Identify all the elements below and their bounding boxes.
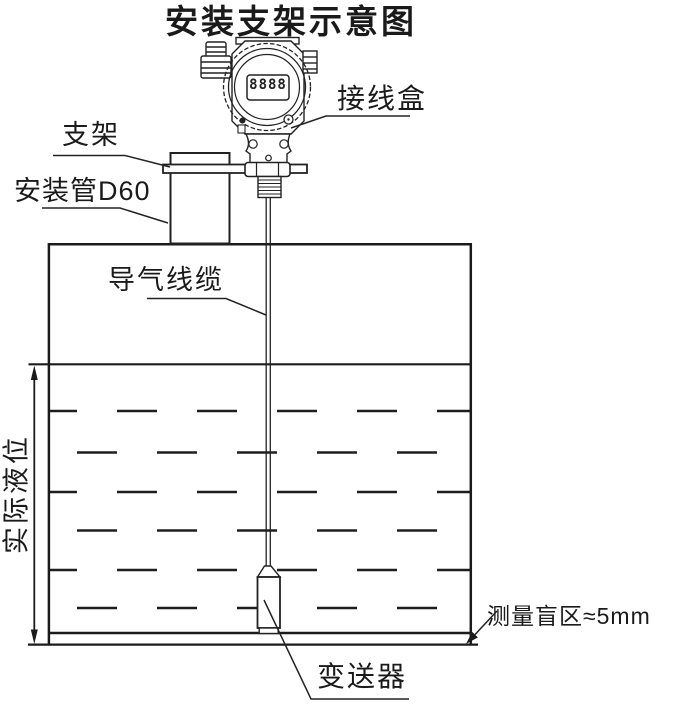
arrowhead-up-icon [31, 366, 38, 381]
tank [28, 243, 478, 645]
leader-bracket [53, 156, 170, 168]
label-mounting-pipe: 安装管D60 [14, 178, 151, 205]
air-cable [266, 198, 270, 570]
leader-junction-box [291, 116, 410, 128]
head-neck [246, 134, 291, 166]
leader-air-cable [147, 299, 266, 316]
screw-left-icon [240, 118, 246, 124]
transmitter-head [201, 38, 317, 167]
label-blind-zone: 测量盲区≈5mm [487, 605, 651, 628]
hex-nut [245, 163, 290, 177]
label-transmitter: 变送器 [317, 663, 407, 691]
diagram-title: 安装支架示意图 [165, 5, 417, 38]
installation-diagram: 安装支架示意图 8888 接线盒 支架 安装管D60 导气线缆 实际液位 测量盲… [0, 0, 700, 708]
lcd-display: 8888 [248, 77, 288, 93]
label-bracket: 支架 [62, 122, 120, 149]
probe [258, 566, 281, 634]
label-air-cable: 导气线缆 [108, 267, 224, 294]
arrowhead-down-icon [31, 630, 38, 645]
level-dimension-arrow [31, 366, 38, 645]
threaded-stub [258, 177, 281, 198]
side-plug-icon [303, 51, 317, 73]
leader-mounting-pipe [42, 208, 168, 223]
label-actual-level: 实际液位 [4, 434, 31, 554]
label-junction-box: 接线盒 [337, 85, 427, 113]
